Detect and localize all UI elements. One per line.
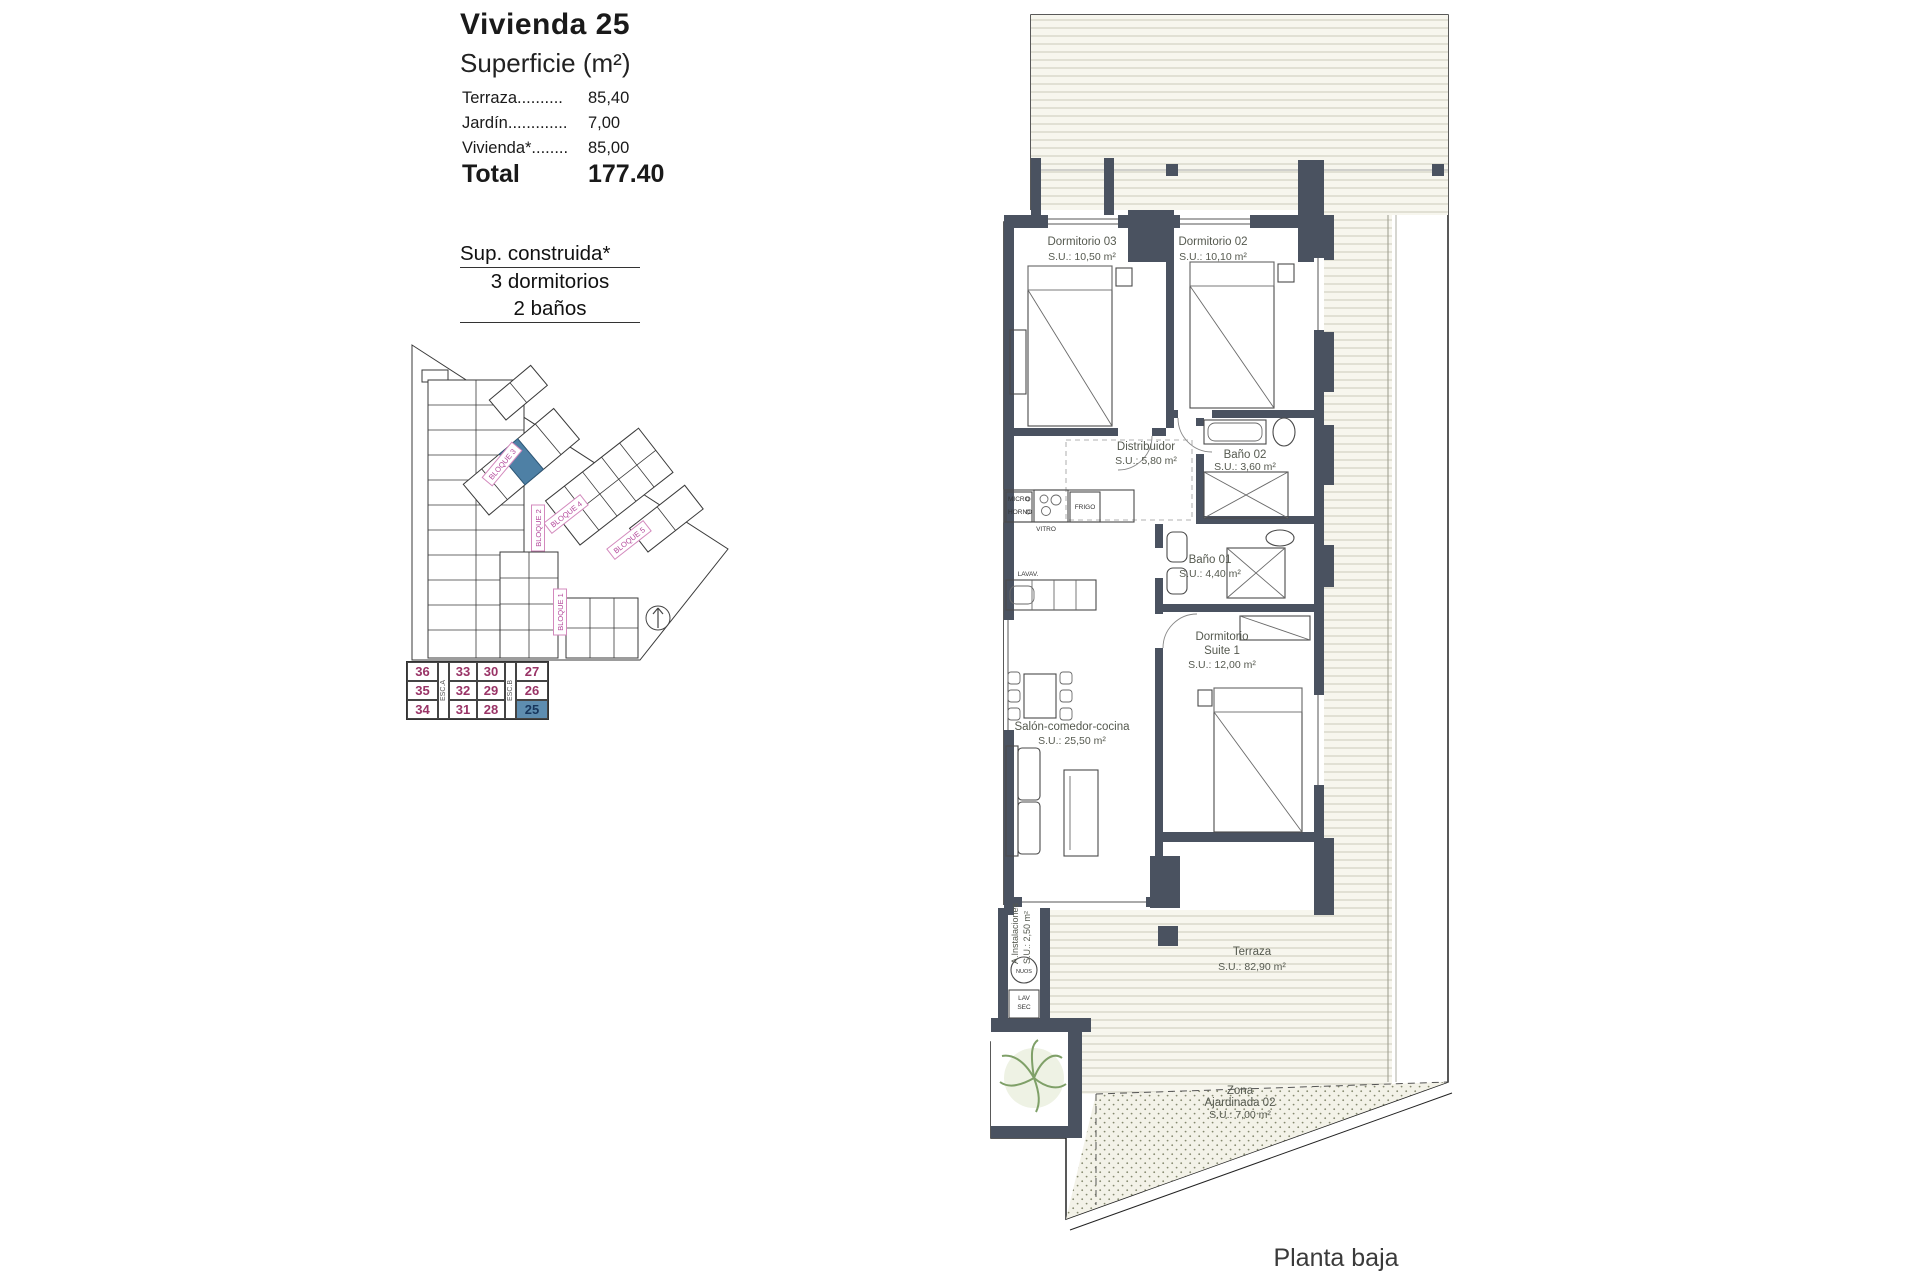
room-label-suite: Dormitorio <box>1195 631 1248 643</box>
svg-text:Suite 1: Suite 1 <box>1204 645 1240 657</box>
svg-text:S.U.: 4,40 m²: S.U.: 4,40 m² <box>1179 568 1241 580</box>
vitro-label: VITRO <box>1036 526 1056 533</box>
lavav-label: LAVAV. <box>1018 571 1039 578</box>
room-label-distribuidor: Distribuidor <box>1117 441 1175 453</box>
svg-text:S.U.: 10,10 m²: S.U.: 10,10 m² <box>1179 251 1247 263</box>
svg-text:BLOQUE 2: BLOQUE 2 <box>534 509 543 547</box>
cluster-bloque1 <box>566 598 638 658</box>
room-label-dorm02: Dormitorio 02 <box>1178 236 1247 248</box>
room-label-bano01: Baño 01 <box>1189 554 1232 566</box>
room-label-salon: Salón-comedor-cocina <box>1014 721 1130 733</box>
lav-label: LAV <box>1018 995 1030 1002</box>
svg-text:S.U.: 7,00 m²: S.U.: 7,00 m² <box>1209 1109 1271 1121</box>
svg-text:S.U.: 10,50 m²: S.U.: 10,50 m² <box>1048 251 1116 263</box>
site-map: BLOQUE 3 BLOQUE 4 BLOQUE 2 BLOQUE 1 BLOQ… <box>412 345 728 660</box>
frigo-label: FRIGO <box>1075 504 1096 511</box>
nuos-label: NUOS <box>1016 969 1032 975</box>
room-label-dorm03: Dormitorio 03 <box>1047 236 1116 248</box>
svg-text:S.U.: 12,00 m²: S.U.: 12,00 m² <box>1188 659 1256 671</box>
svg-text:S.U.: 25,50 m²: S.U.: 25,50 m² <box>1038 735 1106 747</box>
cluster-bloque2 <box>500 552 558 658</box>
bloque2-label: BLOQUE 2 <box>532 505 545 551</box>
sec-label: SEC <box>1017 1004 1031 1011</box>
svg-text:BLOQUE 1: BLOQUE 1 <box>556 593 565 631</box>
plan-caption: Planta baja <box>1273 1244 1398 1272</box>
svg-text:S.U.: 5,80 m²: S.U.: 5,80 m² <box>1115 455 1177 467</box>
floor-plan: Dormitorio 03 S.U.: 10,50 m² Dormitorio … <box>991 15 1452 1272</box>
horno-label: HORNO <box>1008 509 1032 516</box>
svg-text:Ajardinada 02: Ajardinada 02 <box>1205 1097 1276 1109</box>
svg-text:S.U.: 2,50 m²: S.U.: 2,50 m² <box>1022 911 1032 964</box>
room-label-bano02: Baño 02 <box>1224 449 1267 461</box>
bloque1-label: BLOQUE 1 <box>554 589 567 635</box>
svg-text:A.Instalaciones: A.Instalaciones <box>1010 902 1020 964</box>
room-label-jardin: Zona <box>1227 1085 1254 1097</box>
micro-label: MICRO <box>1008 496 1030 503</box>
apartment-interior <box>1004 210 1324 910</box>
floorplan-sheet: Vivienda 25 Superficie (m²) Terraza.....… <box>0 0 1920 1280</box>
drawings-layer: BLOQUE 3 BLOQUE 4 BLOQUE 2 BLOQUE 1 BLOQ… <box>0 0 1920 1280</box>
svg-text:S.U.: 3,60 m²: S.U.: 3,60 m² <box>1214 461 1276 473</box>
room-label-terraza: Terraza <box>1233 946 1272 958</box>
svg-text:S.U.: 82,90 m²: S.U.: 82,90 m² <box>1218 961 1286 973</box>
